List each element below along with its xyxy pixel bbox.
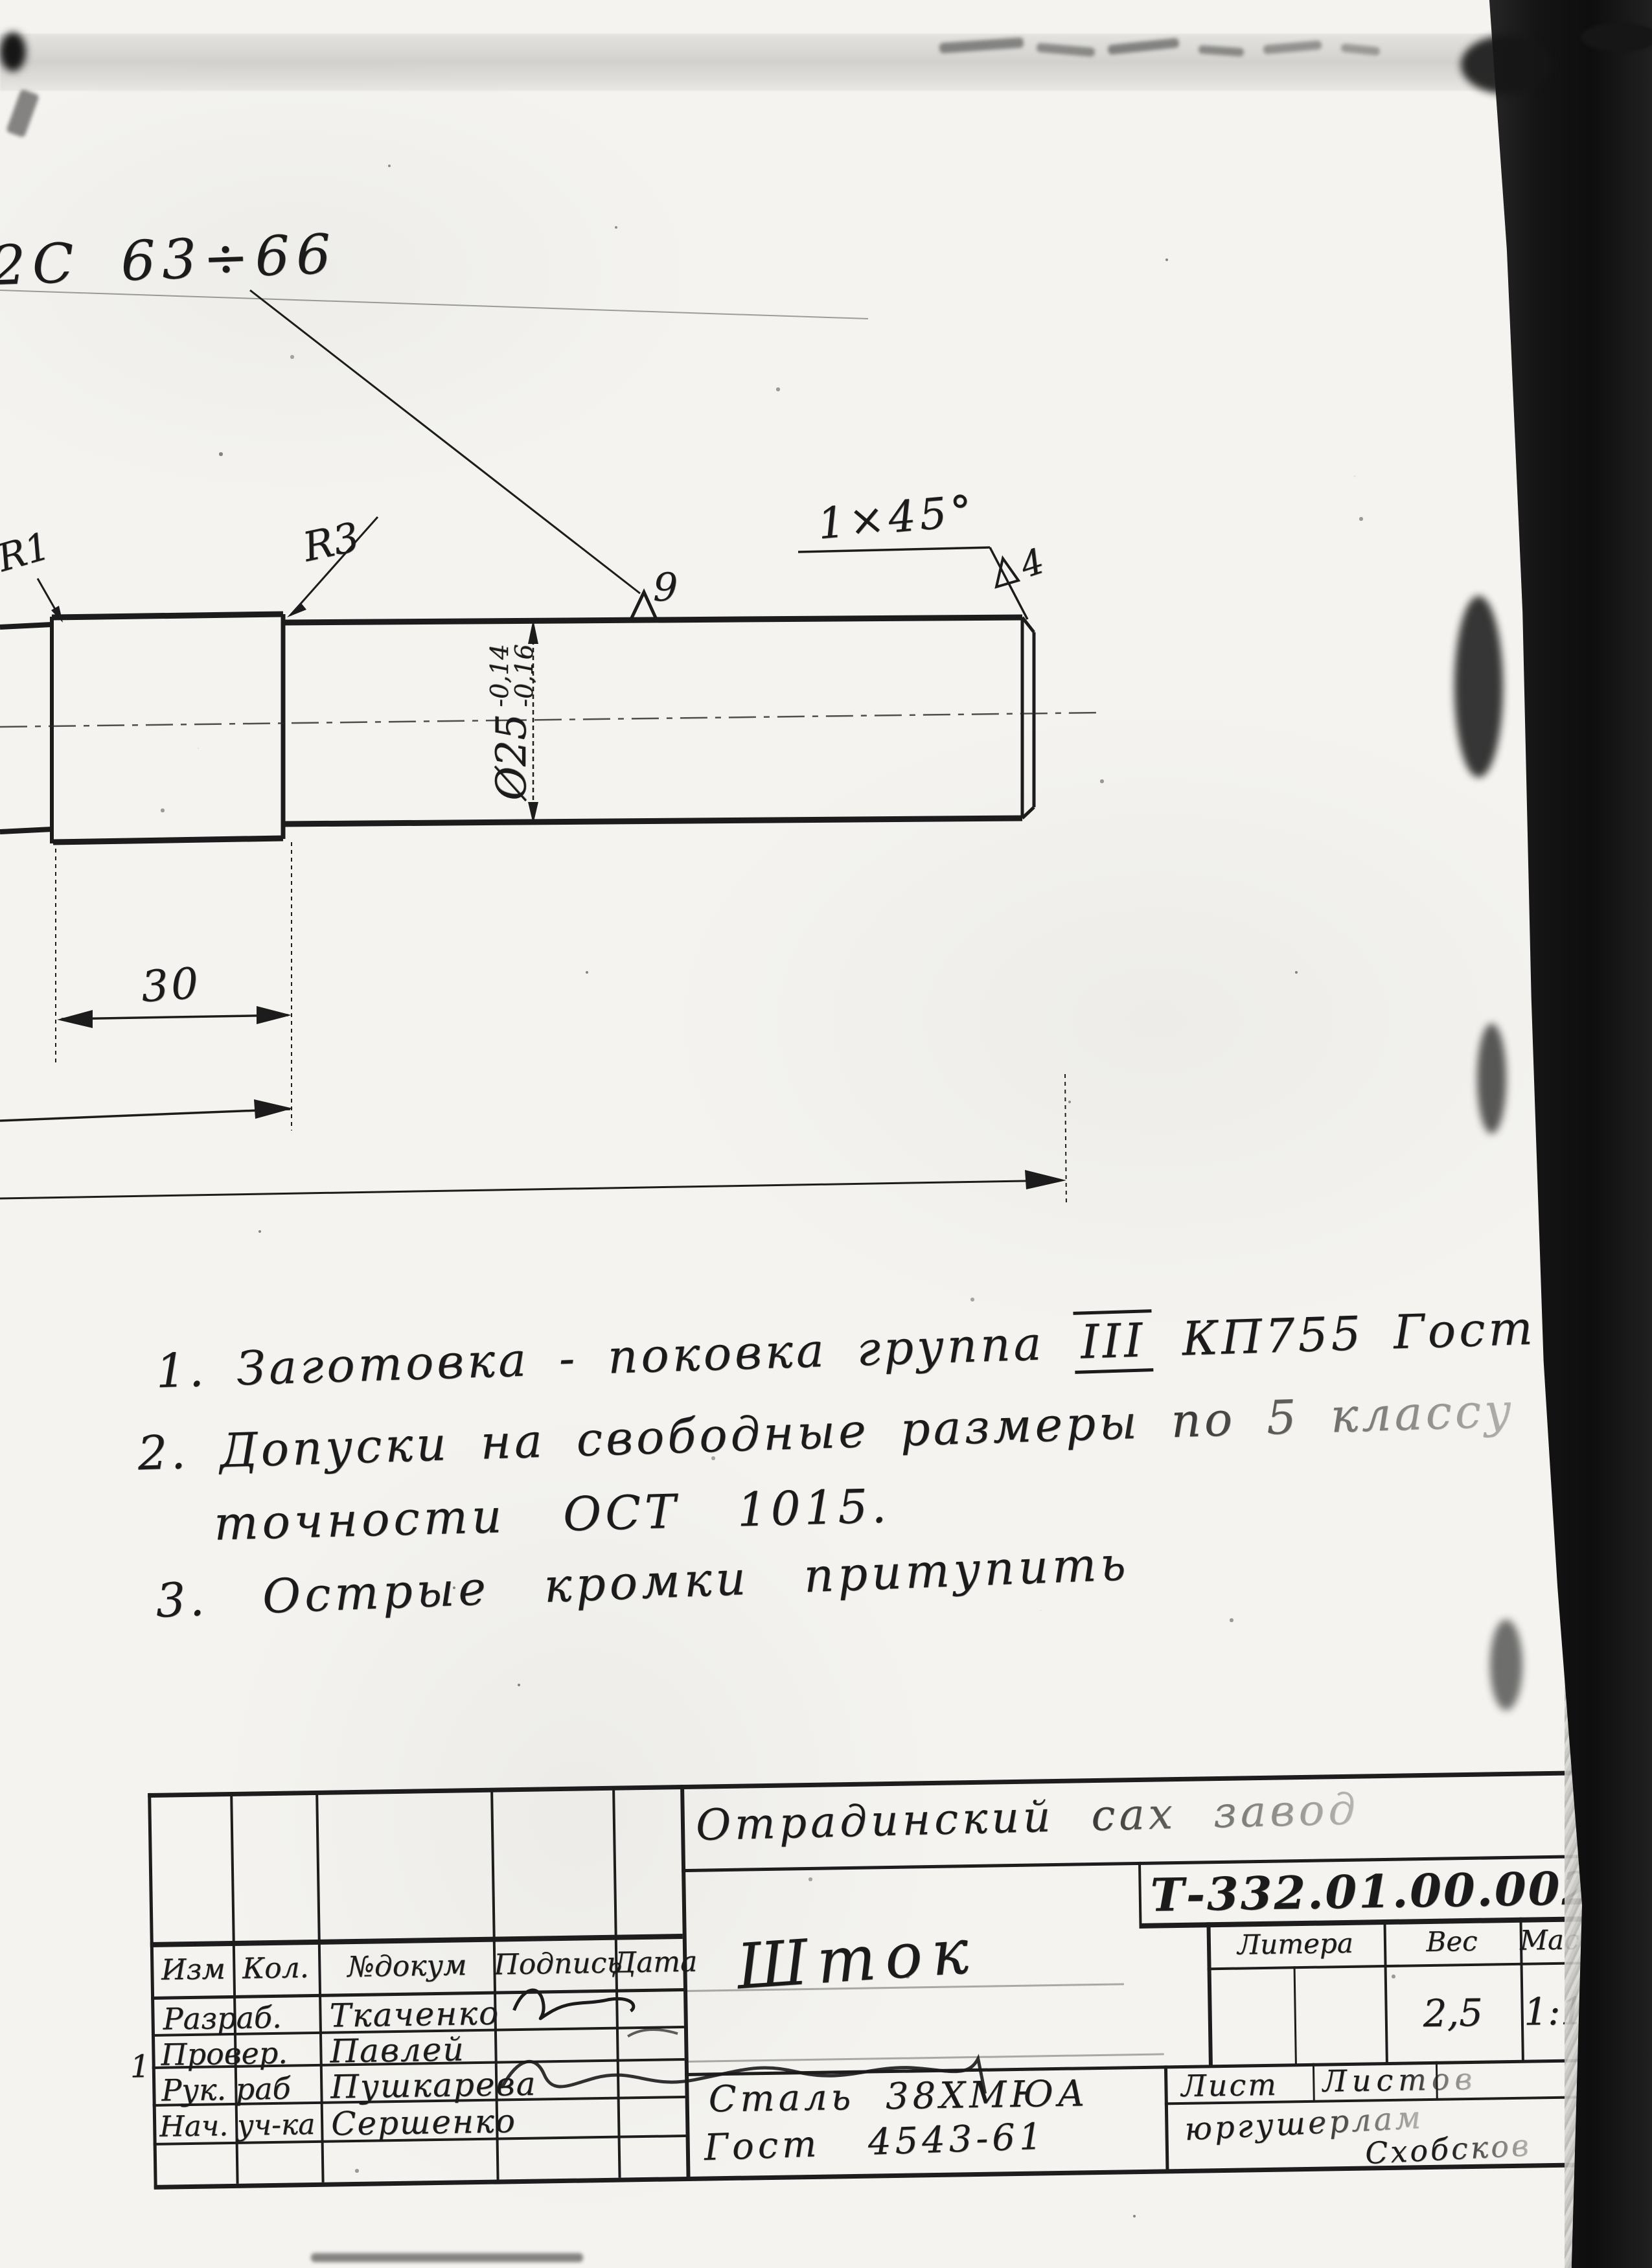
roughness-value: 9 bbox=[653, 565, 678, 610]
centerline bbox=[0, 713, 1101, 727]
scanned-drawing-sheet: 2C 63÷66 R1 R3 9 1×45° 4 Ø25 -0,14 -0,16… bbox=[0, 0, 1652, 2268]
bottom-edge-smear bbox=[311, 2253, 583, 2262]
length-30-label: 30 bbox=[139, 958, 202, 1012]
note1-text: 1. Заготовка - поковка группа bbox=[155, 1316, 1045, 1398]
paper-speckles bbox=[0, 0, 1, 1]
band-smudge-2 bbox=[1477, 1024, 1506, 1134]
stray-mark: 1 bbox=[130, 2048, 150, 2085]
corner-smudge-topleft bbox=[0, 32, 26, 71]
scan-top-smudge bbox=[0, 34, 1503, 91]
signature-ruk-rab bbox=[502, 2054, 985, 2101]
edge-mark-left bbox=[6, 89, 40, 138]
band-smudge-1 bbox=[1454, 596, 1503, 777]
diameter-tol-lower: -0,16 bbox=[512, 644, 536, 707]
diameter-value: Ø25 bbox=[488, 714, 536, 801]
surface-range-callout: 2C 63÷66 bbox=[0, 222, 338, 298]
length-dimensions bbox=[0, 842, 1066, 1206]
note-line-1: 1. Заготовка - поковка группа III КП755 … bbox=[155, 1293, 1652, 1399]
note-line-2: 2. Допуски на свободные размеры по 5 кла… bbox=[137, 1383, 1515, 1481]
title-block: Отрадинский сах завод Т-332.01.00.002 Шт… bbox=[148, 1765, 1592, 2190]
scan-crease-line bbox=[0, 290, 868, 319]
signature-squiggles bbox=[148, 1765, 1592, 2190]
shaft-drawing bbox=[0, 194, 1153, 1257]
diameter-dimension-label: Ø25 -0,14 -0,16 bbox=[483, 615, 541, 829]
signature-razrab bbox=[514, 1989, 634, 2019]
band-smudge-3 bbox=[1490, 1620, 1522, 1710]
note1-roman-group: III bbox=[1073, 1309, 1153, 1374]
note-line-3: точности ОСТ 1015. bbox=[213, 1478, 891, 1550]
band-smudge-top bbox=[1461, 36, 1552, 94]
diameter-tol-upper: -0,14 bbox=[487, 644, 512, 707]
note-line-4: 3. Острые кромки притупить bbox=[155, 1536, 1130, 1628]
roughness-end-mark-icon bbox=[996, 558, 1018, 587]
signature-prover bbox=[628, 2029, 678, 2036]
leader-lines bbox=[38, 290, 1027, 623]
top-right-dark-mark bbox=[1581, 23, 1652, 52]
